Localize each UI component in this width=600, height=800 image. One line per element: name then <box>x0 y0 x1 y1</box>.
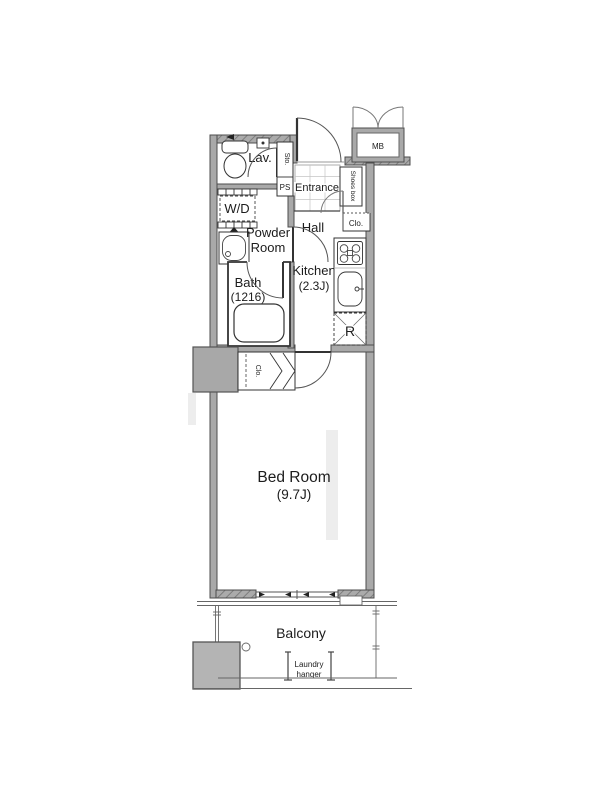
balcony-right-partition <box>373 606 380 678</box>
kitchen-sink-icon <box>338 272 364 306</box>
refrigerator-label: R <box>345 323 355 339</box>
bedroom-windows <box>256 590 338 599</box>
meter-box-label: MB <box>372 142 384 151</box>
entrance-door-swing-arc <box>297 118 341 162</box>
bedroom-size: (9.7J) <box>277 487 312 502</box>
kitchen-label: Kitchen <box>292 263 335 278</box>
bedroom-label: Bed Room <box>257 469 330 486</box>
powder-room-label-2: Room <box>251 240 286 255</box>
washer-dryer: W/D <box>218 189 257 228</box>
pillar <box>193 347 238 392</box>
powder-room: Powder Room <box>219 225 291 264</box>
storage-label: Sto. <box>283 153 290 166</box>
laundry-hanger-label-1: Laundry <box>295 660 324 669</box>
bedroom-closet: Clo. <box>238 352 295 390</box>
toilet-icon <box>222 141 248 178</box>
entrance-area: Entrance <box>294 165 340 211</box>
lav-control-dot-icon <box>262 142 265 145</box>
bath-size: (1216) <box>231 290 266 304</box>
entrance-door <box>295 118 345 162</box>
meter-box-doors-icon <box>353 107 403 128</box>
bedroom-door-arc <box>295 352 331 388</box>
vanity-sink-icon <box>219 232 249 264</box>
storage-column: Sto. PS <box>277 142 293 196</box>
pipe-space-label: PS <box>280 183 291 192</box>
entrance-label: Entrance <box>295 182 339 194</box>
wall-bottom-left <box>216 590 256 598</box>
wd-label: W/D <box>224 201 249 216</box>
kitchen: Kitchen (2.3J) R <box>292 238 366 345</box>
floorplan-drawing: MB Entrance Shoes box Clo. Hall <box>0 0 600 800</box>
balcony-left-partition <box>213 606 221 642</box>
wall-corridor-upper <box>288 196 294 227</box>
balcony: Balcony Laundry hanger <box>193 596 412 689</box>
bedroom-door <box>295 352 331 388</box>
bathroom: Bath (1216) <box>228 262 290 346</box>
wall-lav-wd <box>217 184 277 189</box>
kitchen-size: (2.3J) <box>299 279 330 293</box>
floorplan-page: MB Entrance Shoes box Clo. Hall <box>0 0 600 800</box>
balcony-step <box>340 596 362 605</box>
drain-circle-icon <box>242 643 250 651</box>
wall-left-lower <box>210 392 217 598</box>
refrigerator-space: R <box>334 313 366 345</box>
wall-bedroom-top-right <box>331 345 374 352</box>
powder-room-label-1: Powder <box>246 225 291 240</box>
bedroom-closet-label: Clo. <box>254 365 261 378</box>
balcony-label: Balcony <box>276 625 326 641</box>
bathtub-icon <box>234 304 284 342</box>
wall-left-upper <box>210 135 217 347</box>
outdoor-unit-box <box>193 642 240 689</box>
hall-closet-label: Clo. <box>349 219 363 228</box>
shoes-box-label: Shoes box <box>349 171 356 202</box>
bedroom: Bed Room (9.7J) <box>257 469 330 502</box>
meter-box: MB <box>352 107 404 162</box>
